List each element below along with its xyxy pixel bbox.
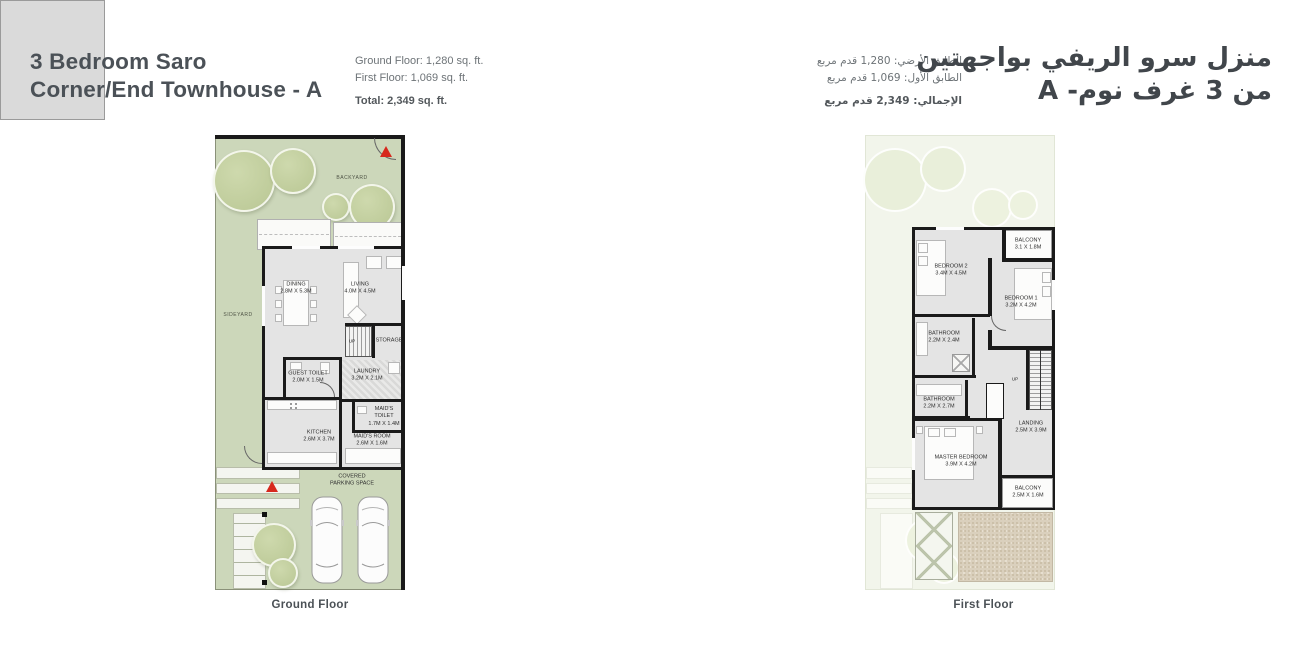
- window: [338, 246, 374, 249]
- room-name: MASTER BEDROOM: [935, 455, 988, 462]
- room-dims: 3.4M X 4.5M: [934, 271, 967, 278]
- room-name: GUEST TOILET: [287, 371, 329, 378]
- wall-segment: [988, 258, 992, 316]
- window: [1052, 280, 1055, 310]
- hob-dot: [295, 407, 297, 409]
- side-table: [976, 426, 983, 434]
- ground-floor-caption: Ground Floor: [215, 599, 405, 611]
- window: [402, 266, 405, 300]
- room-name: BEDROOM 2: [934, 264, 967, 271]
- hob-dot: [290, 403, 292, 405]
- tree-icon: [268, 558, 298, 588]
- first-floor-area: First Floor: 1,069 sq. ft.: [355, 70, 483, 87]
- entrance-arrow-icon: [266, 481, 278, 492]
- backyard-label: BACKYARD: [336, 175, 367, 181]
- ghost-paving-band: [866, 498, 912, 509]
- tree-icon: [270, 148, 316, 194]
- wall-segment: [1002, 230, 1006, 262]
- room-dims: 3.2M X 4.2M: [1004, 303, 1037, 310]
- wall-segment: [345, 323, 405, 326]
- pillow: [1042, 286, 1051, 297]
- wall-segment: [339, 399, 405, 402]
- tree-icon: [213, 150, 275, 212]
- room-name: MAID'S ROOM: [353, 434, 390, 441]
- window: [912, 438, 915, 470]
- page-title-ar-line2: من 3 غرف نوم- A: [916, 75, 1272, 108]
- room-dims: 4.0M X 4.5M: [344, 289, 375, 296]
- room-dims: 1.7M X 1.4M: [367, 421, 401, 428]
- room-label-storage: STORAGE: [376, 337, 403, 344]
- room-name: BATHROOM: [923, 397, 954, 404]
- ghost-paving-band: [866, 467, 912, 479]
- ghost-tree-icon: [920, 146, 966, 192]
- wall-segment: [401, 135, 405, 590]
- paving-band: [216, 498, 300, 509]
- room-label-dining: DINING 2.8M X 5.3M: [280, 282, 311, 297]
- kitchen-counter: [267, 452, 337, 464]
- room-dims: 2.5M X 3.9M: [1015, 428, 1046, 435]
- room-label-guest-toilet: GUEST TOILET 2.0M X 1.5M: [287, 371, 329, 386]
- ghost-tree-icon: [1008, 190, 1038, 220]
- pillow: [1042, 272, 1051, 283]
- room-label-balcony-2: BALCONY 2.5M X 1.6M: [1012, 486, 1043, 501]
- room-name: DINING: [280, 282, 311, 289]
- up-label: UP: [349, 339, 355, 344]
- trellis-roof: [915, 512, 953, 580]
- sideyard-label: SIDEYARD: [223, 312, 252, 318]
- room-name: LANDING: [1015, 421, 1046, 428]
- closet: [986, 383, 1004, 419]
- ghost-tree-icon: [972, 188, 1012, 228]
- chair: [310, 300, 317, 308]
- room-name: BATHROOM: [928, 331, 959, 338]
- room-name: BALCONY: [1015, 238, 1042, 245]
- wall-segment: [283, 357, 286, 397]
- chair: [275, 300, 282, 308]
- armchair: [386, 256, 402, 269]
- paving-band: [216, 483, 300, 494]
- wall-segment: [1002, 258, 1055, 262]
- kitchen-counter: [267, 400, 337, 410]
- north-arrow-icon: [380, 146, 392, 157]
- wall-segment: [912, 418, 1000, 421]
- page-title-line2: Corner/End Townhouse - A: [30, 76, 322, 104]
- ghost-tree-icon: [863, 148, 927, 212]
- pillow: [928, 428, 940, 437]
- room-label-balcony-1: BALCONY 3.1 X 1.8M: [1015, 238, 1042, 253]
- total-area: Total: 2,349 sq. ft.: [355, 93, 483, 110]
- room-dims: 3.9M X 4.2M: [935, 462, 988, 469]
- room-dims: 3.2M X 2.1M: [351, 376, 382, 383]
- page-title: 3 Bedroom Saro Corner/End Townhouse - A: [30, 48, 322, 104]
- deck-line: [335, 236, 401, 237]
- room-label-landing: LANDING 2.5M X 3.9M: [1015, 421, 1046, 436]
- page-title-arabic: منزل سرو الريفي بواجهتين من 3 غرف نوم- A: [916, 42, 1272, 108]
- bathtub: [916, 384, 962, 396]
- wall-segment: [1026, 350, 1029, 410]
- room-name: BALCONY: [1012, 486, 1043, 493]
- washer: [388, 362, 400, 374]
- wall-segment: [283, 357, 339, 360]
- post: [262, 512, 267, 517]
- window: [292, 246, 320, 249]
- room-label-bathroom-2: BATHROOM 2.2M X 2.7M: [923, 397, 954, 412]
- bed: [345, 448, 401, 464]
- room-label-kitchen: KITCHEN 2.6M X 3.7M: [303, 430, 334, 445]
- shower: [952, 354, 970, 372]
- pillow: [918, 256, 928, 266]
- first-floor-caption: First Floor: [912, 599, 1055, 611]
- room-label-bedroom-2: BEDROOM 2 3.4M X 4.5M: [934, 264, 967, 279]
- room-name: LIVING: [344, 282, 375, 289]
- armchair: [366, 256, 382, 269]
- window: [262, 286, 265, 326]
- terrace-texture: [958, 512, 1053, 582]
- wall-segment: [998, 418, 1002, 510]
- post: [262, 580, 267, 585]
- room-dims: 2.2M X 2.7M: [923, 404, 954, 411]
- wall-segment: [912, 314, 990, 317]
- wall-segment: [912, 375, 976, 378]
- room-dims: 2.6M X 1.6M: [353, 441, 390, 448]
- room-dims: 3.1 X 1.8M: [1015, 245, 1042, 252]
- up-label: UP: [1012, 377, 1018, 382]
- wall-segment: [339, 357, 342, 467]
- room-name: KITCHEN: [303, 430, 334, 437]
- hob-dot: [295, 403, 297, 405]
- wall-segment: [1002, 475, 1055, 478]
- room-dims: 2.6M X 3.7M: [303, 437, 334, 444]
- room-name: COVERED PARKING SPACE: [326, 474, 378, 489]
- wall-segment: [372, 323, 375, 358]
- wall-segment: [972, 318, 975, 378]
- ghost-paving-band: [866, 483, 912, 494]
- window: [936, 227, 964, 230]
- wall-segment: [352, 402, 355, 432]
- side-table: [916, 426, 923, 434]
- stair-rail: [1040, 350, 1041, 410]
- sink: [357, 406, 367, 414]
- ground-floor-area: Ground Floor: 1,280 sq. ft.: [355, 53, 483, 70]
- room-label-maids-room: MAID'S ROOM 2.6M X 1.6M: [353, 434, 390, 449]
- area-stats-en: Ground Floor: 1,280 sq. ft. First Floor:…: [355, 53, 483, 110]
- chair: [275, 314, 282, 322]
- room-name: LAUNDRY: [351, 369, 382, 376]
- wall-segment: [352, 430, 405, 433]
- pillow: [944, 428, 956, 437]
- car-icon: [356, 494, 390, 586]
- tree-icon: [322, 193, 350, 221]
- page-title-line1: 3 Bedroom Saro: [30, 48, 322, 76]
- room-name: BEDROOM 1: [1004, 296, 1037, 303]
- chair: [310, 314, 317, 322]
- room-label-bathroom-1: BATHROOM 2.2M X 2.4M: [928, 331, 959, 346]
- wall-segment: [265, 397, 339, 400]
- room-label-living: LIVING 4.0M X 4.5M: [344, 282, 375, 297]
- deck-line: [259, 234, 329, 235]
- room-dims: 2.0M X 1.5M: [287, 378, 329, 385]
- room-dims: 2.5M X 1.6M: [1012, 493, 1043, 500]
- room-dims: 2.8M X 5.3M: [280, 289, 311, 296]
- room-label-master-bedroom: MASTER BEDROOM 3.9M X 4.2M: [935, 455, 988, 470]
- sink: [290, 362, 302, 370]
- room-label-laundry: LAUNDRY 3.2M X 2.1M: [351, 369, 382, 384]
- hob-dot: [290, 407, 292, 409]
- wall-segment: [965, 380, 968, 418]
- car-icon: [310, 494, 344, 586]
- room-label-parking: COVERED PARKING SPACE: [326, 474, 378, 489]
- room-name: MAID'S TOILET: [367, 406, 401, 421]
- room-label-bedroom-1: BEDROOM 1 3.2M X 4.2M: [1004, 296, 1037, 311]
- room-label-maids-toilet: MAID'S TOILET 1.7M X 1.4M: [367, 406, 401, 428]
- room-dims: 2.2M X 2.4M: [928, 338, 959, 345]
- room-name: STORAGE: [376, 337, 403, 344]
- pillow: [918, 243, 928, 253]
- wall-segment: [988, 346, 1055, 350]
- page-title-ar-line1: منزل سرو الريفي بواجهتين: [916, 42, 1272, 75]
- bathtub: [916, 322, 928, 356]
